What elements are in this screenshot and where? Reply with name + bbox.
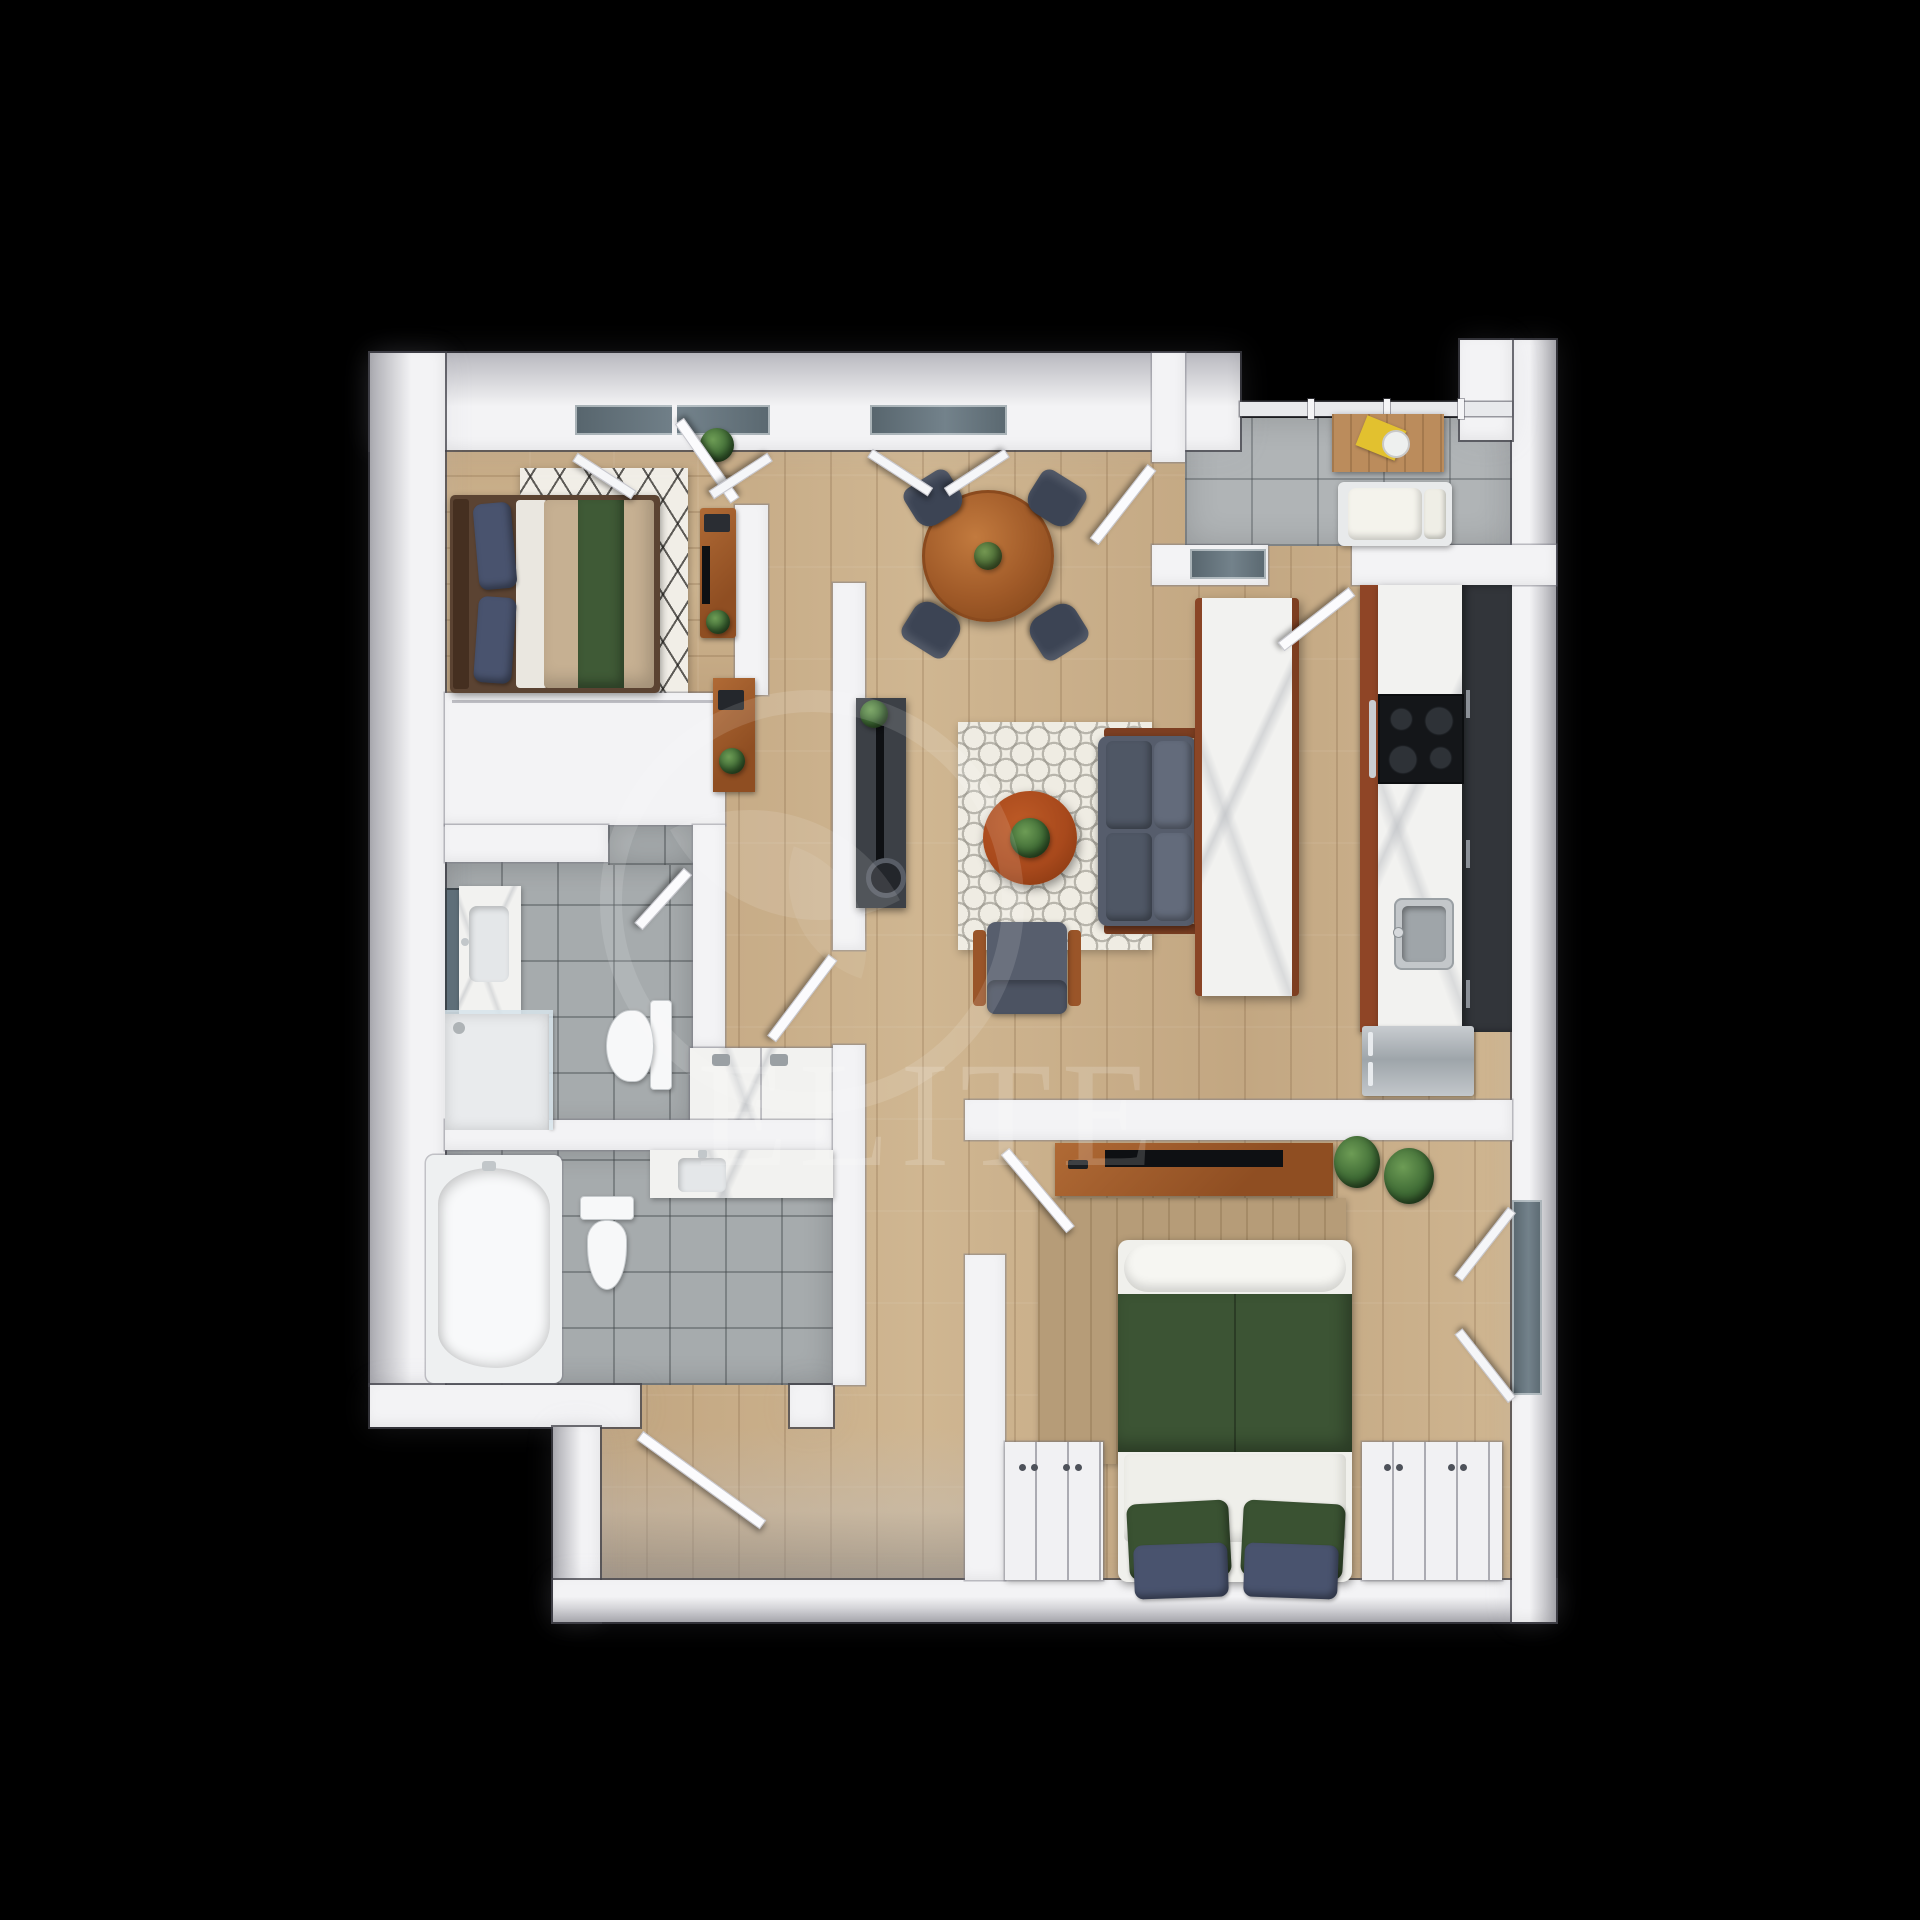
refrigerator [1362, 1026, 1474, 1096]
wall-closet-lower [445, 825, 608, 862]
railing-post-1 [1308, 399, 1314, 419]
toilet2-bowl [587, 1220, 627, 1290]
balcony-seat-pillow [1424, 489, 1446, 539]
wall-outer-bottom [553, 1580, 1556, 1622]
kitchen-cabinet-strip [1360, 585, 1378, 1032]
wall-corner-topright [1460, 340, 1512, 440]
bathroom1-vanity [459, 886, 521, 1016]
wall-bedroom1-right [735, 505, 768, 695]
wall-bedroom2-left [965, 1255, 1005, 1580]
toilet2-tank [580, 1196, 634, 1220]
kitchen-island [1195, 598, 1299, 996]
fridge-handle-2 [1368, 1062, 1373, 1086]
floor-plan-render: ELITE [0, 0, 1920, 1920]
bedroom1-desk [700, 508, 736, 638]
bedroom1-bed [450, 495, 660, 693]
bedroom1-window-mullion [672, 405, 677, 435]
wall-outer-step2 [790, 1385, 833, 1427]
bed1-headboard [453, 499, 469, 689]
bed2-blanket-seam [1234, 1294, 1236, 1452]
bedroom2-bed [1118, 1240, 1352, 1582]
bathroom2-toilet [578, 1196, 636, 1292]
desk-monitor [702, 546, 710, 604]
wall-outer-top [370, 353, 1240, 450]
wall-outer-right [1512, 340, 1556, 1622]
cooktop-stove [1380, 696, 1462, 782]
balcony-seat [1338, 482, 1452, 546]
upper-cabinet-handle-3 [1466, 980, 1470, 1008]
bathtub-basin [438, 1168, 550, 1368]
dresser-knob [1075, 1464, 1082, 1471]
dining-window-glass [870, 405, 1007, 435]
bathtub-faucet [482, 1161, 496, 1171]
shower-glass-top [445, 1010, 553, 1014]
bed1-pillow-bottom [473, 596, 517, 684]
bathroom1-sink [469, 906, 509, 982]
railing-post-3 [1458, 399, 1464, 419]
dresser-knob [1019, 1464, 1026, 1471]
balcony-table [1332, 414, 1444, 472]
bed2-pillow-navy-left [1133, 1542, 1229, 1599]
sink-basin [1402, 906, 1446, 962]
sofa [1098, 728, 1204, 934]
dresser-knob [1384, 1464, 1391, 1471]
sofa-back-cushion-2 [1154, 833, 1192, 921]
dresser-knob [1063, 1464, 1070, 1471]
shower-drain [453, 1022, 465, 1034]
balcony-plate [1382, 430, 1410, 458]
balcony-sliding-glass [1190, 549, 1266, 579]
bedroom2-plant-1 [1334, 1136, 1380, 1188]
bed1-green-runner [578, 500, 624, 688]
dining-centerpiece [974, 542, 1002, 570]
balcony-seat-cushion [1348, 488, 1422, 540]
watermark-text: ELITE [690, 1040, 1170, 1190]
dresser-knob [1396, 1464, 1403, 1471]
bedroom2-plant-2 [1384, 1148, 1434, 1204]
fridge-handle-1 [1368, 1032, 1373, 1056]
upper-cabinet-handle-1 [1466, 690, 1470, 718]
bed2-green-blanket [1118, 1294, 1352, 1452]
upper-cabinet-handle-2 [1466, 840, 1470, 868]
bed2-rolled-edge [1124, 1244, 1346, 1292]
sofa-back-cushion-1 [1154, 741, 1192, 829]
kitchen-upper-cabinets [1462, 585, 1512, 1032]
shower-glass-right [549, 1014, 553, 1130]
closet-door-track [452, 700, 718, 703]
bathtub [426, 1155, 562, 1383]
bedroom2-window-glass [1512, 1200, 1542, 1395]
wall-balcony-left [1152, 353, 1185, 462]
desk-keyboard [704, 514, 730, 532]
shower-tray [445, 1014, 549, 1130]
kitchen-sink [1394, 898, 1454, 970]
dresser-knob [1448, 1464, 1455, 1471]
sofa-seat-cushion-1 [1106, 741, 1152, 829]
sink-faucet [1394, 928, 1403, 937]
dresser-knob [1460, 1464, 1467, 1471]
bathroom1-faucet [461, 938, 469, 946]
sofa-seat-cushion-2 [1106, 833, 1152, 921]
oven-handle [1369, 700, 1376, 778]
wall-balcony-bottom-right [1352, 545, 1556, 585]
bedroom2-dresser-left [1005, 1442, 1103, 1580]
bedroom2-dresser-right [1362, 1442, 1502, 1580]
armchair-arm-right [1068, 930, 1081, 1006]
bed2-pillow-navy-right [1243, 1542, 1339, 1599]
desk-plant [706, 610, 730, 634]
dresser-knob [1031, 1464, 1038, 1471]
bed1-pillow-top [472, 502, 517, 591]
wall-outer-step [370, 1385, 640, 1427]
